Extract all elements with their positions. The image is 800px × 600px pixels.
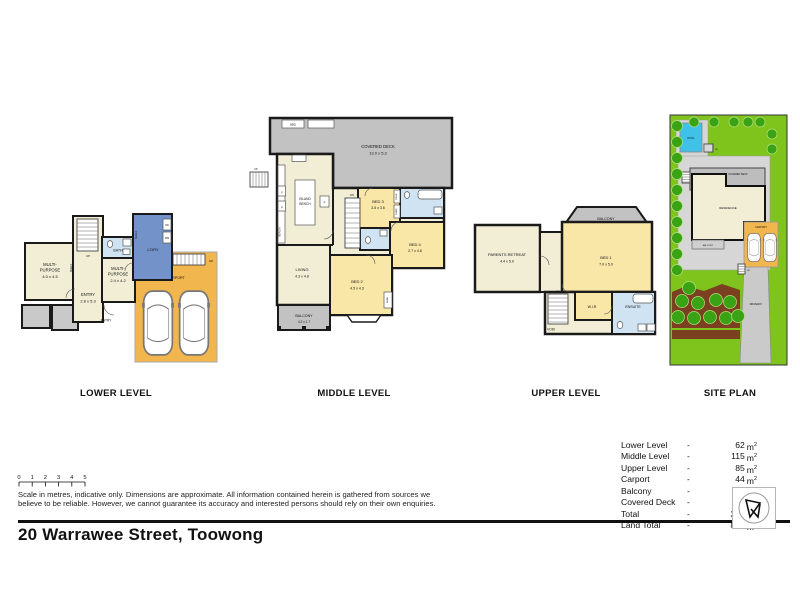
area-dash: - [687,521,697,532]
external-stairs [250,172,268,187]
basin [647,324,655,331]
room-label-laundry: L'DRY [147,247,159,252]
upper-level-title: UPPER LEVEL [531,388,600,399]
svg-text:PURPOSE: PURPOSE [108,272,129,277]
balcony-post [326,326,330,330]
robe-label: ROBE [387,296,389,303]
svg-text:4.4 x 5.0: 4.4 x 5.0 [500,260,514,264]
svg-text:4.3 x 4.8: 4.3 x 4.8 [295,275,309,279]
deck-bench [308,120,334,128]
car [747,234,761,262]
svg-text:2.8 x 5.3: 2.8 x 5.3 [80,299,96,304]
area-dash: - [687,498,697,509]
area-unit: m2 [747,441,757,452]
disclaimer-line-1: Scale in metres, indicative only. Dimens… [18,490,448,499]
upper-level-plan: BALCONY DN VOID PARENTS RETREAT 4.4 x 5.… [470,196,662,348]
dn-label: DN [556,290,560,294]
dryer-label: DR [165,224,169,227]
disclaimer: Scale in metres, indicative only. Dimens… [18,490,448,508]
up-label: UP [715,149,719,151]
bench-label: BENCH [278,227,282,236]
scale-tick-label: 2 [44,475,47,481]
scale-tick-label: 5 [83,475,86,481]
sink [292,155,306,162]
balcony-post [277,326,281,330]
car [142,291,174,355]
island-bench-label: ISLAND BENCH [299,197,311,206]
residence-label: RESIDENCE [719,206,737,210]
entry-stairs [77,219,98,251]
entry-door-label: ENTRY [101,319,113,323]
svg-text:ISLAND: ISLAND [299,197,311,201]
site-plan: DRIVEWAY POOL COVERED DECK RESIDENCE BAL… [668,112,789,368]
svg-text:2.4 x 4.2: 2.4 x 4.2 [110,278,126,283]
bathtub [633,294,653,303]
hallway [540,232,562,292]
scale-tick-label: 4 [70,475,74,481]
toilet [404,192,409,199]
svg-text:BED 4: BED 4 [409,242,421,247]
room-label-entry: ENTRY 2.8 x 5.3 [80,292,96,304]
basin [638,324,646,331]
area-label: Covered Deck [621,498,687,509]
svg-text:3.5 x 3.6: 3.5 x 3.6 [371,206,385,210]
shelf-label: SHELF [69,263,73,272]
site-deck-label: COVERED DECK [728,173,748,176]
shower [123,239,131,246]
room-bed2 [330,255,392,315]
garden-strip [672,330,740,339]
svg-text:2.7 x 4.6: 2.7 x 4.6 [408,249,422,253]
property-address: 20 Warrawee Street, Toowong [18,525,263,545]
svg-text:4.5 x 4.3: 4.5 x 4.3 [350,287,364,291]
basin [434,207,442,214]
door-arc [104,305,114,315]
svg-text:PURPOSE: PURPOSE [40,268,61,273]
svg-text:4.0 x 4.5: 4.0 x 4.5 [42,274,58,279]
bay-window [347,315,381,322]
balcony-post [302,326,306,330]
svg-text:ENTRY: ENTRY [81,292,95,297]
scale-tick-label: 1 [31,475,34,481]
driveway-label: DRIVEWAY [750,303,763,306]
svg-text:COVERED DECK: COVERED DECK [361,144,395,149]
site-carport-label: CARPORT [755,226,767,229]
room-label-wir: W.I.R [588,305,597,309]
up-label: UP [254,167,258,171]
shelf-label: SHELF [134,230,138,239]
svg-text:BALCONY: BALCONY [295,314,313,318]
svg-text:LIVING: LIVING [295,267,308,272]
room-label-ensuite: ENSUITE [625,305,641,309]
svg-text:PARENTS RETREAT: PARENTS RETREAT [488,252,527,257]
up-label: UP [209,259,213,263]
svg-text:7.0 x 5.0: 7.0 x 5.0 [599,263,613,267]
svg-text:13.0 x 5.3: 13.0 x 5.3 [369,151,387,156]
car [763,234,777,262]
scale-ruler [19,482,85,487]
stairs-down [345,198,360,248]
site-balcony-label: BALCONY [703,244,714,247]
pool-label: POOL [687,136,695,140]
middle-level-plan: BBQ COVERED DECK 13.0 x 5.3 UP DN [248,110,460,342]
porch [22,305,50,328]
toilet [365,237,370,244]
void-label: VOID [547,328,555,332]
car [178,291,210,355]
toilet [617,321,623,328]
area-unit: m2 [747,475,757,486]
toilet [107,241,112,248]
desk-label: DESK [396,193,398,199]
svg-text:BED 2: BED 2 [351,279,363,284]
pantry-label: P [281,206,283,210]
agency-logo-mark [735,490,773,526]
basin [380,230,387,236]
scale-tick-label: 0 [17,475,20,481]
agency-logo [732,487,776,529]
area-unit: m2 [747,464,757,475]
pantry-label: P [324,201,326,205]
svg-text:BENCH: BENCH [299,202,311,206]
area-label: Land Total [621,521,687,532]
basin [123,249,130,255]
carport-stairs [173,254,205,265]
balcony-label: BALCONY [597,217,615,221]
scale-bar: 0 1 2 3 4 5 [17,473,93,488]
dn-label: DN [350,193,354,197]
site-plan-title: SITE PLAN [704,388,756,399]
room-parents-retreat [475,225,540,292]
svg-text:BED 1: BED 1 [600,255,612,260]
up-label: UP [86,254,90,258]
svg-text:4.2 x 1.7: 4.2 x 1.7 [298,320,310,324]
room-label-bath: BATH [113,249,123,253]
up-label: UP [747,270,751,272]
svg-text:MULTI-: MULTI- [43,262,57,267]
stairs-down [548,294,568,324]
washer-label: WM [165,237,169,240]
bathtub [418,190,442,199]
svg-text:MULTI-: MULTI- [111,266,125,271]
disclaimer-line-2: believe to be reliable. However, we cann… [18,499,448,508]
area-unit: m2 [747,452,757,463]
floorplan-page: UP CARPORT UP DR WM MU [0,0,800,600]
lower-level-plan: UP CARPORT UP DR WM MU [20,193,242,378]
scale-tick-label: 3 [57,475,60,481]
robe-label: ROBE [396,208,398,215]
bbq-label: BBQ [290,123,295,127]
svg-text:BED 3: BED 3 [372,199,384,204]
middle-level-title: MIDDLE LEVEL [317,388,390,399]
lower-level-title: LOWER LEVEL [80,388,152,399]
